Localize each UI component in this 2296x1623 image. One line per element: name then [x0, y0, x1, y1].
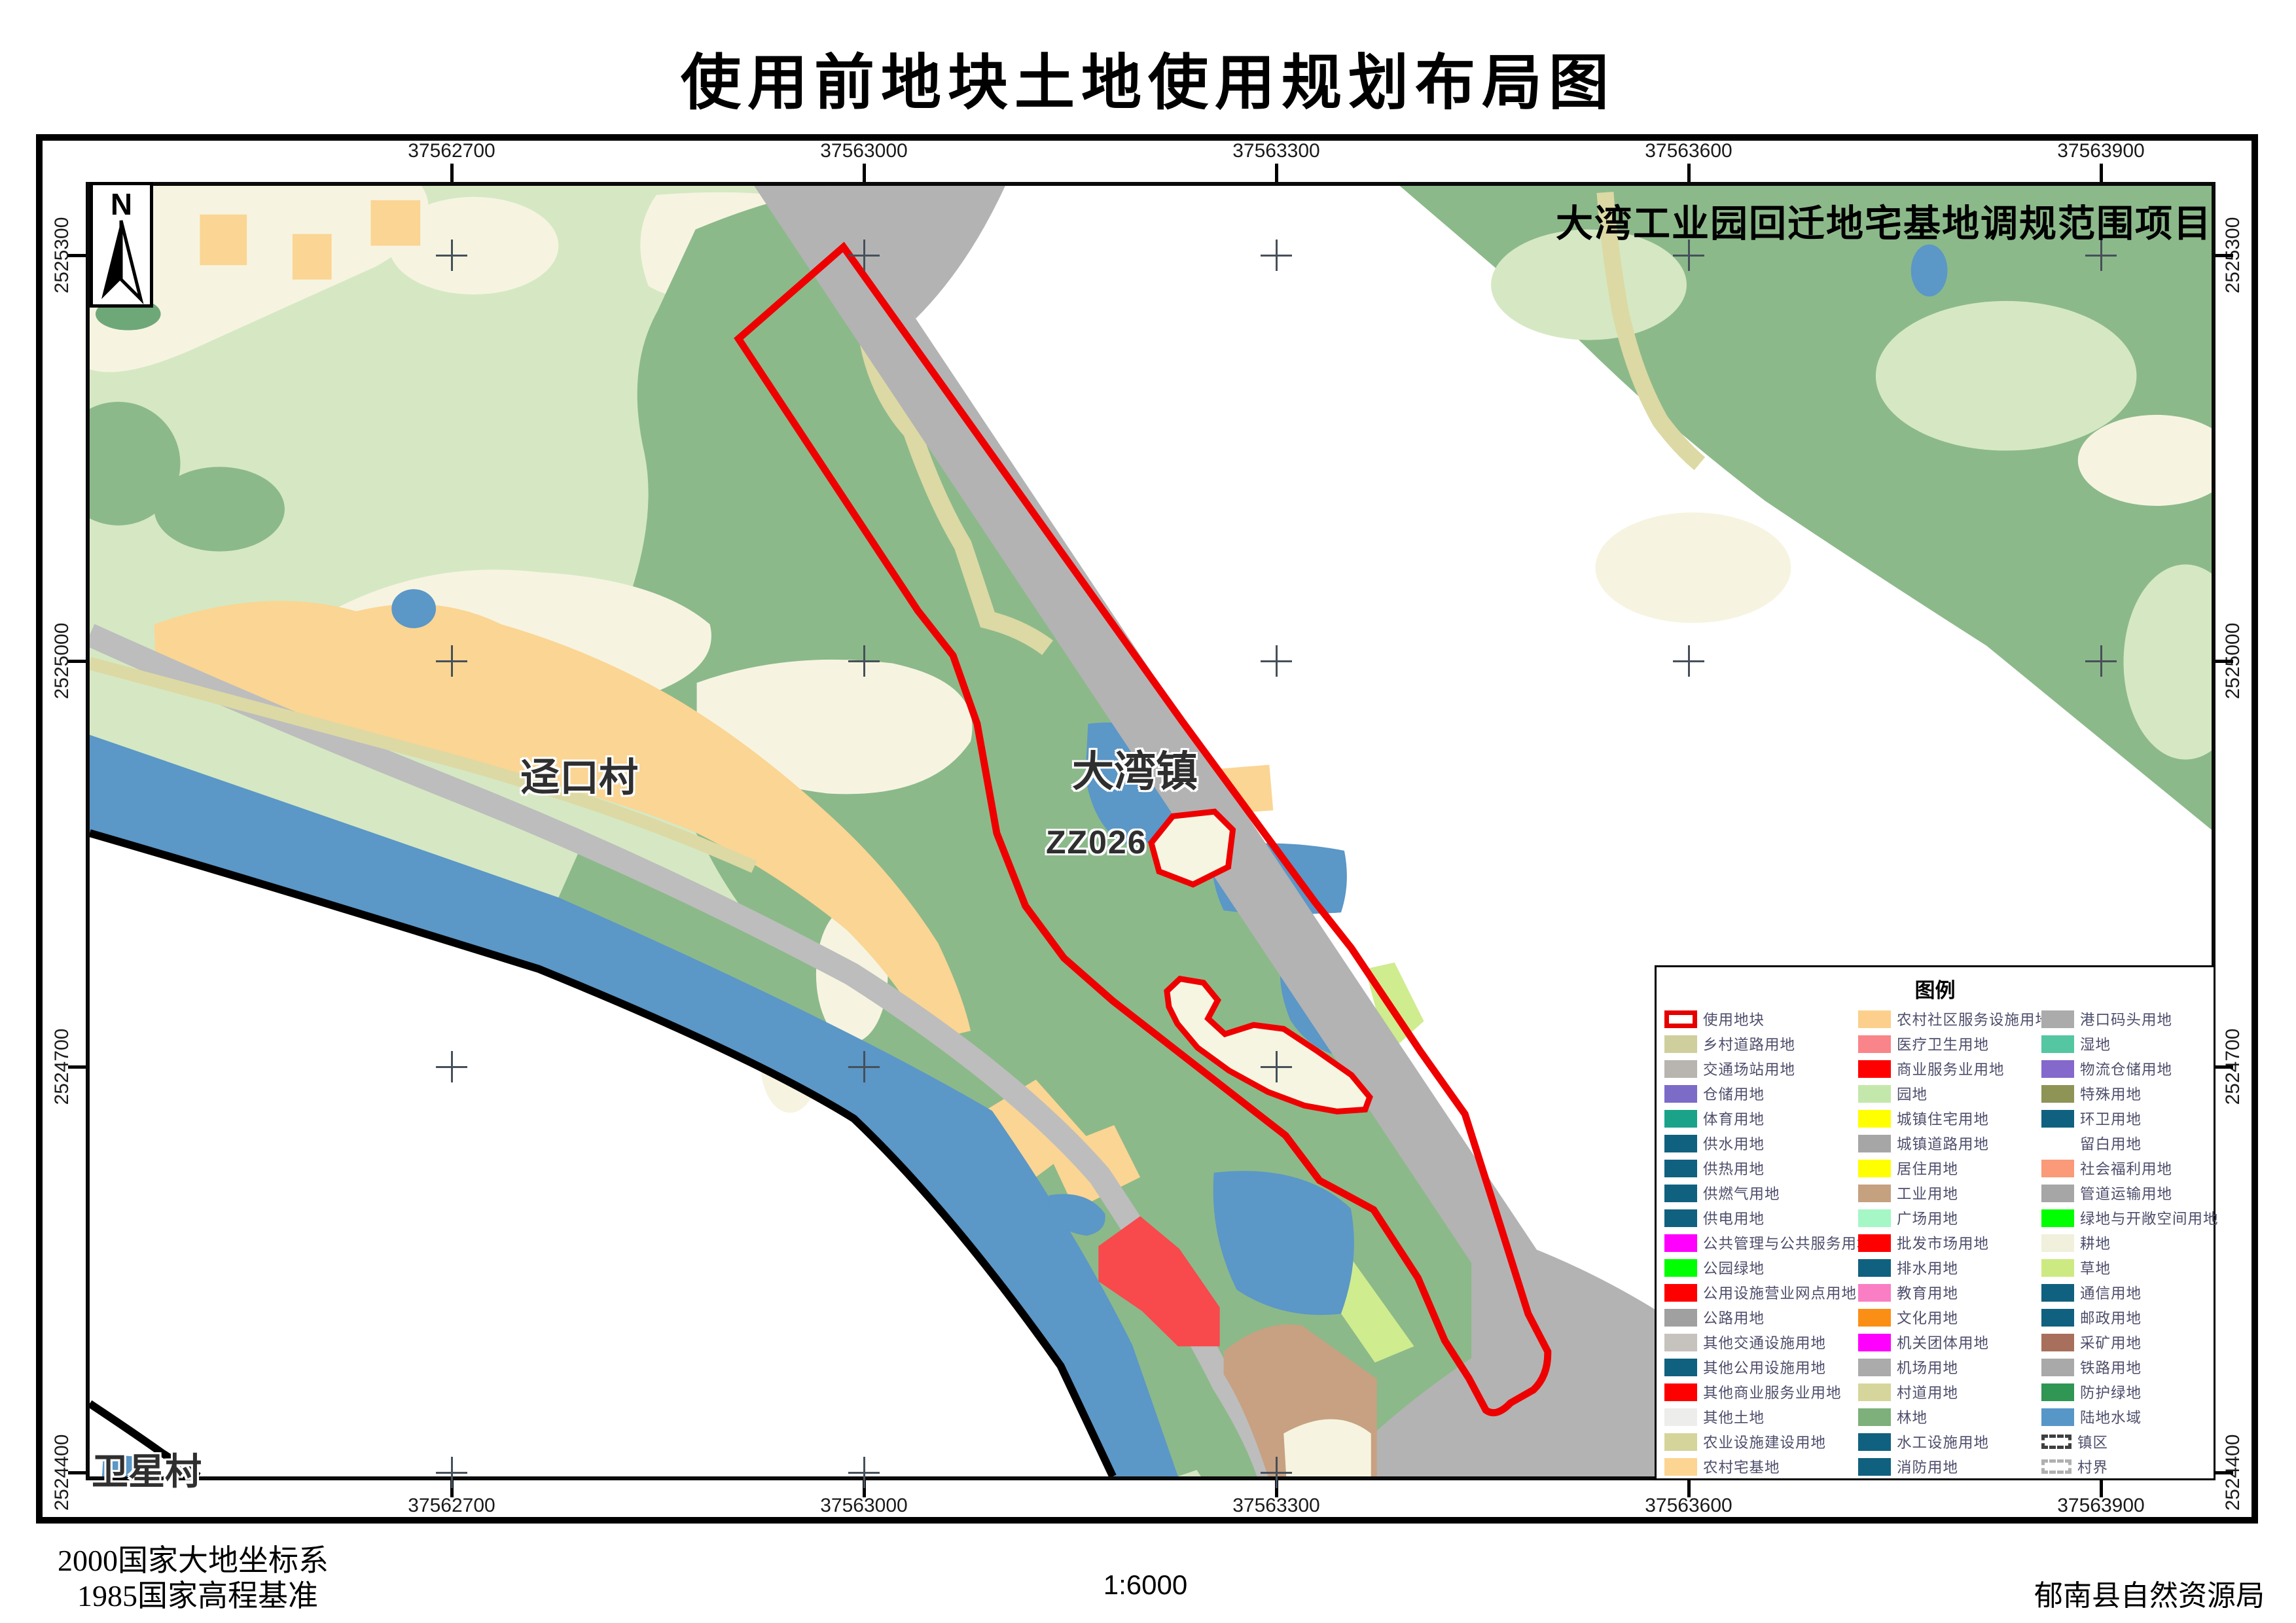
legend-swatch — [1858, 1085, 1891, 1103]
map-sheet: 使用前地块土地使用规划布局图 — [0, 0, 2296, 1623]
legend-item-label: 机关团体用地 — [1897, 1332, 1989, 1353]
legend-item: 村道用地 — [1858, 1380, 2051, 1404]
legend-item: 城镇住宅用地 — [1858, 1106, 2051, 1131]
legend-swatch — [2041, 1284, 2074, 1302]
legend-swatch — [1664, 1433, 1697, 1451]
grid-tick — [2215, 254, 2233, 257]
grid-tick — [863, 1480, 866, 1497]
legend-swatch — [2041, 1010, 2074, 1028]
legend-item-label: 特殊用地 — [2080, 1083, 2142, 1104]
grid-tick — [1687, 164, 1691, 182]
grid-tick — [68, 254, 86, 257]
legend-item: 港口码头用地 — [2041, 1007, 2219, 1031]
legend-item: 农业设施建设用地 — [1664, 1429, 1873, 1454]
grid-tick — [2215, 660, 2233, 663]
legend-item-label: 其他商业服务业用地 — [1703, 1382, 1842, 1402]
legend-swatch — [1664, 1085, 1697, 1103]
legend-item-label: 物流仓储用地 — [2080, 1058, 2172, 1079]
legend-swatch — [1664, 1259, 1697, 1277]
legend-item: 排水用地 — [1858, 1255, 2051, 1280]
legend-item: 采矿用地 — [2041, 1330, 2219, 1355]
legend-item: 铁路用地 — [2041, 1355, 2219, 1380]
legend-item-label: 防护绿地 — [2080, 1382, 2142, 1402]
label-jingkou-village: 迳口村 — [520, 746, 638, 803]
legend-item-label: 林地 — [1897, 1406, 1928, 1427]
legend-item-label: 教育用地 — [1897, 1282, 1958, 1303]
legend-swatch — [1664, 1309, 1697, 1327]
label-dawan-town: 大湾镇 — [1072, 738, 1198, 798]
legend-item: 物流仓储用地 — [2041, 1056, 2219, 1081]
grid-tick — [68, 1471, 86, 1474]
legend-item-label: 港口码头用地 — [2080, 1008, 2172, 1029]
legend-item: 特殊用地 — [2041, 1081, 2219, 1106]
label-weixing-village: 卫星村 — [92, 1442, 202, 1495]
page-title: 使用前地块土地使用规划布局图 — [0, 34, 2296, 121]
legend-item-label: 农业设施建设用地 — [1703, 1431, 1826, 1452]
grid-tick — [68, 660, 86, 663]
legend-swatch — [1664, 1383, 1697, 1401]
legend-item-label: 批发市场用地 — [1897, 1232, 1989, 1253]
legend-swatch — [1664, 1010, 1697, 1028]
legend-item: 绿地与开敞空间用地 — [2041, 1205, 2219, 1230]
legend-item-label: 通信用地 — [2080, 1282, 2142, 1303]
datum-line-2: 1985国家高程基准 — [77, 1572, 318, 1615]
grid-label-easting-bottom: 37563300 — [1227, 1495, 1325, 1517]
legend-swatch — [1858, 1433, 1891, 1451]
legend-item-label: 体育用地 — [1703, 1108, 1765, 1129]
legend-item: 仓储用地 — [1664, 1081, 1873, 1106]
legend-swatch — [1858, 1359, 1891, 1376]
legend-item-label: 城镇道路用地 — [1897, 1133, 1989, 1154]
legend-swatch — [1858, 1010, 1891, 1028]
legend-swatch — [1664, 1160, 1697, 1177]
legend-item: 供电用地 — [1664, 1205, 1873, 1230]
legend-item: 其他交通设施用地 — [1664, 1330, 1873, 1355]
grid-label-easting-top: 37563300 — [1227, 140, 1325, 162]
legend-column: 农村社区服务设施用地医疗卫生用地商业服务业用地园地城镇住宅用地城镇道路用地居住用… — [1858, 1007, 2051, 1479]
legend-swatch — [1664, 1359, 1697, 1376]
legend-item: 供燃气用地 — [1664, 1181, 1873, 1205]
legend-swatch — [2041, 1234, 2074, 1252]
legend-item: 防护绿地 — [2041, 1380, 2219, 1404]
grid-label-easting-top: 37563900 — [2052, 140, 2150, 162]
legend-item: 村界 — [2041, 1454, 2219, 1479]
legend-swatch — [1664, 1234, 1697, 1252]
legend-item-label: 耕地 — [2080, 1232, 2111, 1253]
legend-item-label: 镇区 — [2077, 1431, 2108, 1452]
legend-item: 乡村道路用地 — [1664, 1031, 1873, 1056]
legend-swatch — [2041, 1035, 2074, 1053]
legend-item: 其他土地 — [1664, 1404, 1873, 1429]
legend-swatch — [1858, 1284, 1891, 1302]
grid-label-easting-bottom: 37563600 — [1640, 1495, 1738, 1517]
legend-item-label: 机场用地 — [1897, 1357, 1958, 1378]
legend-swatch — [2041, 1435, 2072, 1449]
legend-swatch — [1858, 1135, 1891, 1152]
legend-item: 批发市场用地 — [1858, 1230, 2051, 1255]
legend-item: 广场用地 — [1858, 1205, 2051, 1230]
legend-swatch — [2041, 1135, 2074, 1152]
legend-swatch — [2041, 1085, 2074, 1103]
legend-item: 园地 — [1858, 1081, 2051, 1106]
legend-swatch — [1858, 1383, 1891, 1401]
legend-item-label: 供燃气用地 — [1703, 1183, 1780, 1204]
legend-item-label: 商业服务业用地 — [1897, 1058, 2005, 1079]
legend-swatch — [1858, 1309, 1891, 1327]
legend-item-label: 管道运输用地 — [2080, 1183, 2172, 1204]
legend-item-label: 排水用地 — [1897, 1257, 1958, 1278]
legend-item: 机关团体用地 — [1858, 1330, 2051, 1355]
legend-item: 湿地 — [2041, 1031, 2219, 1056]
legend-item-label: 文化用地 — [1897, 1307, 1958, 1328]
grid-label-easting-bottom: 37562700 — [403, 1495, 501, 1517]
legend-item: 居住用地 — [1858, 1156, 2051, 1181]
legend-item: 公共管理与公共服务用地 — [1664, 1230, 1873, 1255]
legend-swatch — [1664, 1284, 1697, 1302]
legend-item: 耕地 — [2041, 1230, 2219, 1255]
legend-item: 教育用地 — [1858, 1280, 2051, 1305]
legend-swatch — [1664, 1035, 1697, 1053]
legend-item-label: 环卫用地 — [2080, 1108, 2142, 1129]
legend-item: 林地 — [1858, 1404, 2051, 1429]
legend-item-label: 医疗卫生用地 — [1897, 1033, 1989, 1054]
legend-item-label: 村界 — [2077, 1456, 2108, 1477]
legend: 图例 使用地块乡村道路用地交通场站用地仓储用地体育用地供水用地供热用地供燃气用地… — [1655, 965, 2215, 1480]
legend-swatch — [1858, 1110, 1891, 1128]
legend-swatch — [1858, 1185, 1891, 1202]
legend-item: 体育用地 — [1664, 1106, 1873, 1131]
legend-item: 使用地块 — [1664, 1007, 1873, 1031]
legend-item-label: 公共管理与公共服务用地 — [1703, 1232, 1873, 1253]
grid-tick — [450, 1480, 454, 1497]
legend-swatch — [1858, 1160, 1891, 1177]
legend-item: 机场用地 — [1858, 1355, 2051, 1380]
agency-name: 郁南县自然资源局 — [1898, 1572, 2265, 1614]
grid-label-easting-bottom: 37563900 — [2052, 1495, 2150, 1517]
legend-swatch — [1664, 1334, 1697, 1351]
legend-item-label: 邮政用地 — [2080, 1307, 2142, 1328]
legend-item: 医疗卫生用地 — [1858, 1031, 2051, 1056]
legend-swatch — [2041, 1459, 2072, 1474]
legend-item: 农村社区服务设施用地 — [1858, 1007, 2051, 1031]
legend-item-label: 其他公用设施用地 — [1703, 1357, 1826, 1378]
grid-tick — [1275, 1480, 1278, 1497]
legend-item-label: 乡村道路用地 — [1703, 1033, 1795, 1054]
legend-swatch — [1664, 1185, 1697, 1202]
legend-item-label: 草地 — [2080, 1257, 2111, 1278]
legend-item: 农村宅基地 — [1664, 1454, 1873, 1479]
legend-swatch — [2041, 1334, 2074, 1351]
legend-item-label: 其他交通设施用地 — [1703, 1332, 1826, 1353]
legend-item-label: 供水用地 — [1703, 1133, 1765, 1154]
grid-tick — [2100, 164, 2103, 182]
legend-swatch — [2041, 1209, 2074, 1227]
legend-swatch — [1858, 1259, 1891, 1277]
legend-item-label: 供热用地 — [1703, 1158, 1765, 1179]
grid-label-easting-bottom: 37563000 — [815, 1495, 913, 1517]
legend-item: 消防用地 — [1858, 1454, 2051, 1479]
legend-item-label: 湿地 — [2080, 1033, 2111, 1054]
legend-swatch — [2041, 1408, 2074, 1426]
legend-item-label: 园地 — [1897, 1083, 1928, 1104]
legend-item: 交通场站用地 — [1664, 1056, 1873, 1081]
legend-item-label: 水工设施用地 — [1897, 1431, 1989, 1452]
legend-swatch — [2041, 1259, 2074, 1277]
grid-tick — [1275, 164, 1278, 182]
legend-item: 留白用地 — [2041, 1131, 2219, 1156]
legend-swatch — [1858, 1334, 1891, 1351]
grid-label-easting-top: 37562700 — [403, 140, 501, 162]
grid-label-easting-top: 37563000 — [815, 140, 913, 162]
legend-swatch — [2041, 1383, 2074, 1401]
legend-swatch — [1858, 1408, 1891, 1426]
legend-item: 商业服务业用地 — [1858, 1056, 2051, 1081]
legend-item: 公路用地 — [1664, 1305, 1873, 1330]
legend-item-label: 公用设施营业网点用地 — [1703, 1282, 1857, 1303]
legend-item-label: 公园绿地 — [1703, 1257, 1765, 1278]
legend-swatch — [1664, 1209, 1697, 1227]
legend-item: 社会福利用地 — [2041, 1156, 2219, 1181]
legend-item: 其他商业服务业用地 — [1664, 1380, 1873, 1404]
legend-swatch — [1858, 1209, 1891, 1227]
legend-swatch — [2041, 1060, 2074, 1078]
label-parcel-code: ZZ026 — [1046, 823, 1147, 861]
project-title-label: 大湾工业园回迁地宅基地调规范围项目 — [1486, 194, 2212, 247]
legend-item-label: 使用地块 — [1703, 1008, 1765, 1029]
legend-item: 水工设施用地 — [1858, 1429, 2051, 1454]
north-arrow: N — [90, 182, 153, 308]
legend-swatch — [2041, 1359, 2074, 1376]
legend-item-label: 交通场站用地 — [1703, 1058, 1795, 1079]
legend-swatch — [1664, 1060, 1697, 1078]
legend-item-label: 供电用地 — [1703, 1207, 1765, 1228]
legend-item: 通信用地 — [2041, 1280, 2219, 1305]
legend-swatch — [1858, 1458, 1891, 1476]
legend-item-label: 采矿用地 — [2080, 1332, 2142, 1353]
legend-item: 邮政用地 — [2041, 1305, 2219, 1330]
legend-item-label: 消防用地 — [1897, 1456, 1958, 1477]
legend-item: 公用设施营业网点用地 — [1664, 1280, 1873, 1305]
legend-swatch — [2041, 1185, 2074, 1202]
legend-swatch — [1858, 1035, 1891, 1053]
legend-item-label: 铁路用地 — [2080, 1357, 2142, 1378]
legend-item-label: 仓储用地 — [1703, 1083, 1765, 1104]
legend-item-label: 居住用地 — [1897, 1158, 1958, 1179]
legend-item: 陆地水域 — [2041, 1404, 2219, 1429]
legend-swatch — [2041, 1309, 2074, 1327]
legend-item-label: 公路用地 — [1703, 1307, 1765, 1328]
legend-item-label: 陆地水域 — [2080, 1406, 2142, 1427]
legend-item: 草地 — [2041, 1255, 2219, 1280]
legend-item-label: 绿地与开敞空间用地 — [2080, 1207, 2219, 1228]
grid-tick — [450, 164, 454, 182]
grid-label-easting-top: 37563600 — [1640, 140, 1738, 162]
legend-swatch — [2041, 1110, 2074, 1128]
legend-item: 其他公用设施用地 — [1664, 1355, 1873, 1380]
legend-item: 镇区 — [2041, 1429, 2219, 1454]
legend-swatch — [1664, 1408, 1697, 1426]
legend-item-label: 村道用地 — [1897, 1382, 1958, 1402]
legend-item: 供热用地 — [1664, 1156, 1873, 1181]
legend-column: 使用地块乡村道路用地交通场站用地仓储用地体育用地供水用地供热用地供燃气用地供电用… — [1664, 1007, 1873, 1479]
legend-item: 供水用地 — [1664, 1131, 1873, 1156]
legend-swatch — [1664, 1458, 1697, 1476]
legend-swatch — [1664, 1110, 1697, 1128]
grid-tick — [2100, 1480, 2103, 1497]
north-needle-icon — [93, 217, 150, 306]
legend-item: 城镇道路用地 — [1858, 1131, 2051, 1156]
legend-swatch — [1664, 1135, 1697, 1152]
legend-item: 环卫用地 — [2041, 1106, 2219, 1131]
legend-item-label: 工业用地 — [1897, 1183, 1958, 1204]
legend-item: 管道运输用地 — [2041, 1181, 2219, 1205]
scale-text: 1:6000 — [1060, 1569, 1230, 1601]
grid-tick — [1687, 1480, 1691, 1497]
legend-swatch — [1858, 1234, 1891, 1252]
legend-column: 港口码头用地湿地物流仓储用地特殊用地环卫用地留白用地社会福利用地管道运输用地绿地… — [2041, 1007, 2219, 1479]
legend-item-label: 留白用地 — [2080, 1133, 2142, 1154]
legend-item-label: 其他土地 — [1703, 1406, 1765, 1427]
grid-tick — [863, 164, 866, 182]
legend-item-label: 社会福利用地 — [2080, 1158, 2172, 1179]
legend-item: 公园绿地 — [1664, 1255, 1873, 1280]
legend-swatch — [2041, 1160, 2074, 1177]
legend-item-label: 城镇住宅用地 — [1897, 1108, 1989, 1129]
legend-item-label: 农村社区服务设施用地 — [1897, 1008, 2051, 1029]
legend-item-label: 农村宅基地 — [1703, 1456, 1780, 1477]
legend-item: 工业用地 — [1858, 1181, 2051, 1205]
legend-swatch — [1858, 1060, 1891, 1078]
legend-item: 文化用地 — [1858, 1305, 2051, 1330]
legend-title: 图例 — [1657, 974, 2214, 1003]
legend-item-label: 广场用地 — [1897, 1207, 1958, 1228]
grid-tick — [68, 1065, 86, 1069]
